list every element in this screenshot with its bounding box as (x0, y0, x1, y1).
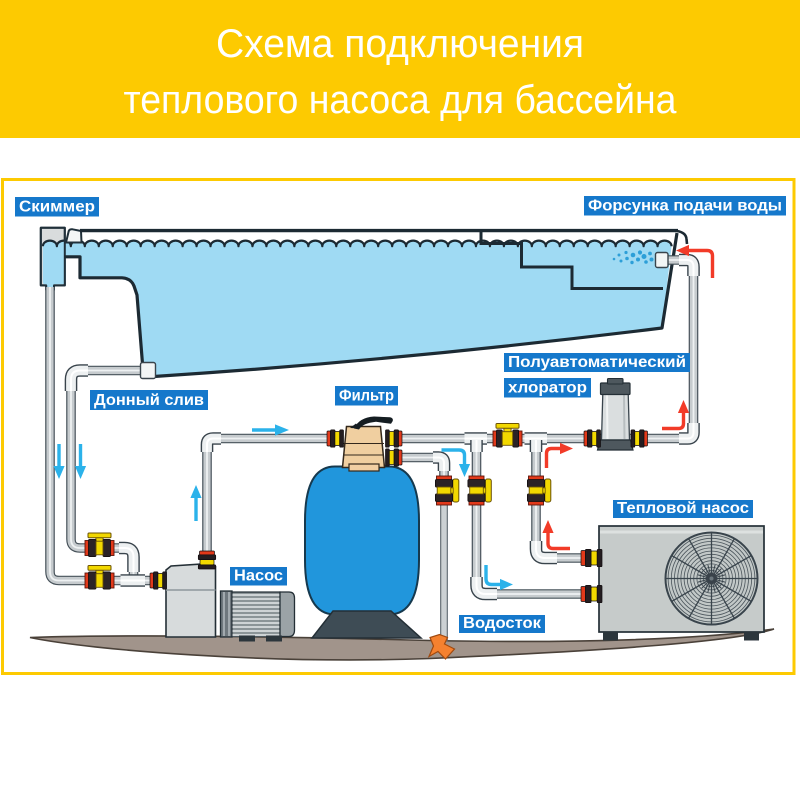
svg-text:Донный слив: Донный слив (94, 392, 204, 409)
svg-text:Насос: Насос (234, 568, 283, 585)
svg-text:Форсунка подачи воды: Форсунка подачи воды (588, 198, 782, 215)
svg-text:Фильтр: Фильтр (339, 388, 394, 405)
svg-text:теплового насоса для бассейна: теплового насоса для бассейна (124, 78, 678, 122)
svg-text:Водосток: Водосток (463, 615, 542, 632)
svg-text:Скиммер: Скиммер (19, 199, 95, 216)
svg-text:Тепловой насос: Тепловой насос (617, 500, 749, 517)
svg-text:Полуавтоматический: Полуавтоматический (508, 354, 686, 371)
svg-text:Схема подключения: Схема подключения (216, 22, 584, 66)
svg-text:хлоратор: хлоратор (508, 380, 587, 397)
